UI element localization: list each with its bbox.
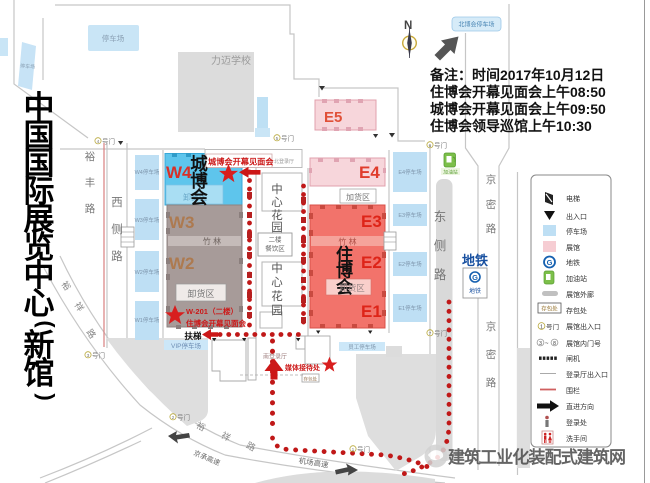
svg-text:裕: 裕 [59,279,73,293]
svg-text:W-201（二楼）: W-201（二楼） [186,306,238,316]
svg-text:2: 2 [172,415,175,421]
svg-text:力迈学校: 力迈学校 [211,54,251,67]
svg-text:号门: 号门 [177,412,190,421]
svg-text:京: 京 [486,320,497,333]
svg-text:E3: E3 [361,212,382,231]
svg-text:城博会开幕见面会: 城博会开幕见面会 [208,157,274,167]
svg-text:4: 4 [97,139,100,145]
svg-text:W3: W3 [169,213,195,232]
svg-text:展馆出入口: 展馆出入口 [566,322,601,331]
svg-text:E1停车场: E1停车场 [398,304,422,312]
svg-text:西: 西 [111,197,123,209]
svg-text:侧: 侧 [111,223,123,236]
svg-text:地铁: 地铁 [469,287,481,295]
svg-text:竹 林: 竹 林 [203,236,221,246]
svg-text:卸货区: 卸货区 [339,283,365,293]
svg-text:W2停车场: W2停车场 [135,268,160,276]
svg-text:存包处: 存包处 [304,375,318,382]
svg-text:心: 心 [271,196,283,209]
svg-text:中: 中 [271,183,283,196]
svg-text:1: 1 [352,447,355,453]
svg-text:N: N [404,20,412,32]
svg-text:路: 路 [111,249,123,263]
svg-text:东: 东 [434,210,447,224]
svg-text:加货区: 加货区 [346,192,370,202]
svg-text:园: 园 [271,221,283,234]
svg-text:员工停车场: 员工停车场 [348,343,376,351]
svg-text:花: 花 [271,290,283,303]
svg-text:加油站: 加油站 [566,274,587,283]
svg-text:地铁: 地铁 [462,253,488,268]
svg-text:3: 3 [539,341,542,347]
svg-text:路: 路 [85,202,96,215]
svg-text:侧: 侧 [434,239,447,253]
svg-text:媒体接待处: 媒体接待处 [284,363,321,372]
svg-text:E2停车场: E2停车场 [398,260,422,268]
svg-text:心: 心 [271,276,283,289]
svg-text:8: 8 [553,341,556,347]
svg-text:丰: 丰 [85,176,96,189]
svg-text:路: 路 [434,267,447,282]
svg-text:号门: 号门 [92,350,105,359]
svg-text:号门: 号门 [434,328,447,337]
svg-text:停车场: 停车场 [20,62,35,70]
svg-text:): ) [34,393,59,400]
svg-text:E1: E1 [361,302,382,321]
svg-text:3: 3 [87,353,90,359]
svg-text:登录厅出入口: 登录厅出入口 [566,370,608,379]
svg-text:洗手间: 洗手间 [566,434,587,443]
svg-text:E2: E2 [361,253,382,272]
svg-text:出入口: 出入口 [566,212,587,221]
svg-text:E4: E4 [359,163,380,182]
svg-text:E5: E5 [324,109,342,126]
svg-text:竹 林: 竹 林 [338,237,356,247]
svg-text:G: G [547,258,553,267]
svg-text:W2: W2 [169,254,195,273]
svg-text:裕: 裕 [85,150,96,163]
svg-text:中: 中 [271,262,283,275]
svg-text:北登录厅: 北登录厅 [274,158,294,165]
svg-text:闸机: 闸机 [566,354,580,363]
svg-text:展馆外廊: 展馆外廊 [566,290,594,299]
svg-text:路: 路 [245,439,258,453]
svg-text:密: 密 [486,198,497,211]
svg-text:密: 密 [486,348,497,361]
svg-text:电梯: 电梯 [566,194,580,203]
svg-text:卸货区: 卸货区 [187,288,214,299]
svg-text:号门: 号门 [102,136,115,145]
svg-text:京承高速: 京承高速 [192,448,221,467]
svg-text:5: 5 [276,136,279,142]
svg-text:京: 京 [486,173,497,186]
svg-text:W3停车场: W3停车场 [135,216,160,224]
svg-text:停车场: 停车场 [102,33,125,43]
svg-text:会: 会 [190,188,208,208]
svg-text:展馆: 展馆 [566,243,580,252]
svg-text:馆: 馆 [24,356,55,391]
svg-text:建筑工业化装配式建筑网: 建筑工业化装配式建筑网 [448,447,626,467]
svg-text:7: 7 [429,331,432,337]
svg-text:~: ~ [545,341,549,347]
svg-text:E3停车场: E3停车场 [398,211,422,219]
svg-text:登录处: 登录处 [566,418,587,427]
svg-text:W4: W4 [166,163,192,182]
svg-text:园: 园 [271,304,283,317]
svg-text:存包处: 存包处 [566,306,587,315]
svg-text:住博会开幕见面会: 住博会开幕见面会 [186,318,246,328]
svg-text:餐饮区: 餐饮区 [265,244,285,253]
svg-text:围栏: 围栏 [566,386,580,395]
svg-text:展馆内门号: 展馆内门号 [566,339,601,348]
svg-text:W4停车场: W4停车场 [135,168,160,176]
svg-text:二楼: 二楼 [269,235,283,244]
svg-text:1: 1 [540,324,543,330]
svg-text:号门: 号门 [546,322,559,331]
svg-text:地铁: 地铁 [566,258,580,267]
svg-text:号门: 号门 [281,133,294,142]
svg-text:路: 路 [486,376,497,389]
svg-text:心: 心 [24,286,55,321]
svg-text:G: G [472,273,478,282]
svg-text:直进方向: 直进方向 [566,402,594,411]
svg-text:号门: 号门 [357,444,370,453]
svg-text:W1停车场: W1停车场 [135,316,160,324]
svg-text:加油站: 加油站 [443,169,458,176]
svg-text:花: 花 [271,209,283,222]
svg-text:北博会停车场: 北博会停车场 [458,21,494,29]
svg-text:VIP停车场: VIP停车场 [171,341,201,350]
svg-text:存包处: 存包处 [541,305,558,313]
svg-text:号门: 号门 [434,140,447,149]
svg-text:扶梯: 扶梯 [184,331,202,341]
svg-text:E4停车场: E4停车场 [398,168,422,176]
svg-text:停车场: 停车场 [566,227,587,236]
svg-text:南登录厅: 南登录厅 [263,353,287,361]
svg-text:6: 6 [429,143,432,149]
svg-text:路: 路 [486,222,497,235]
